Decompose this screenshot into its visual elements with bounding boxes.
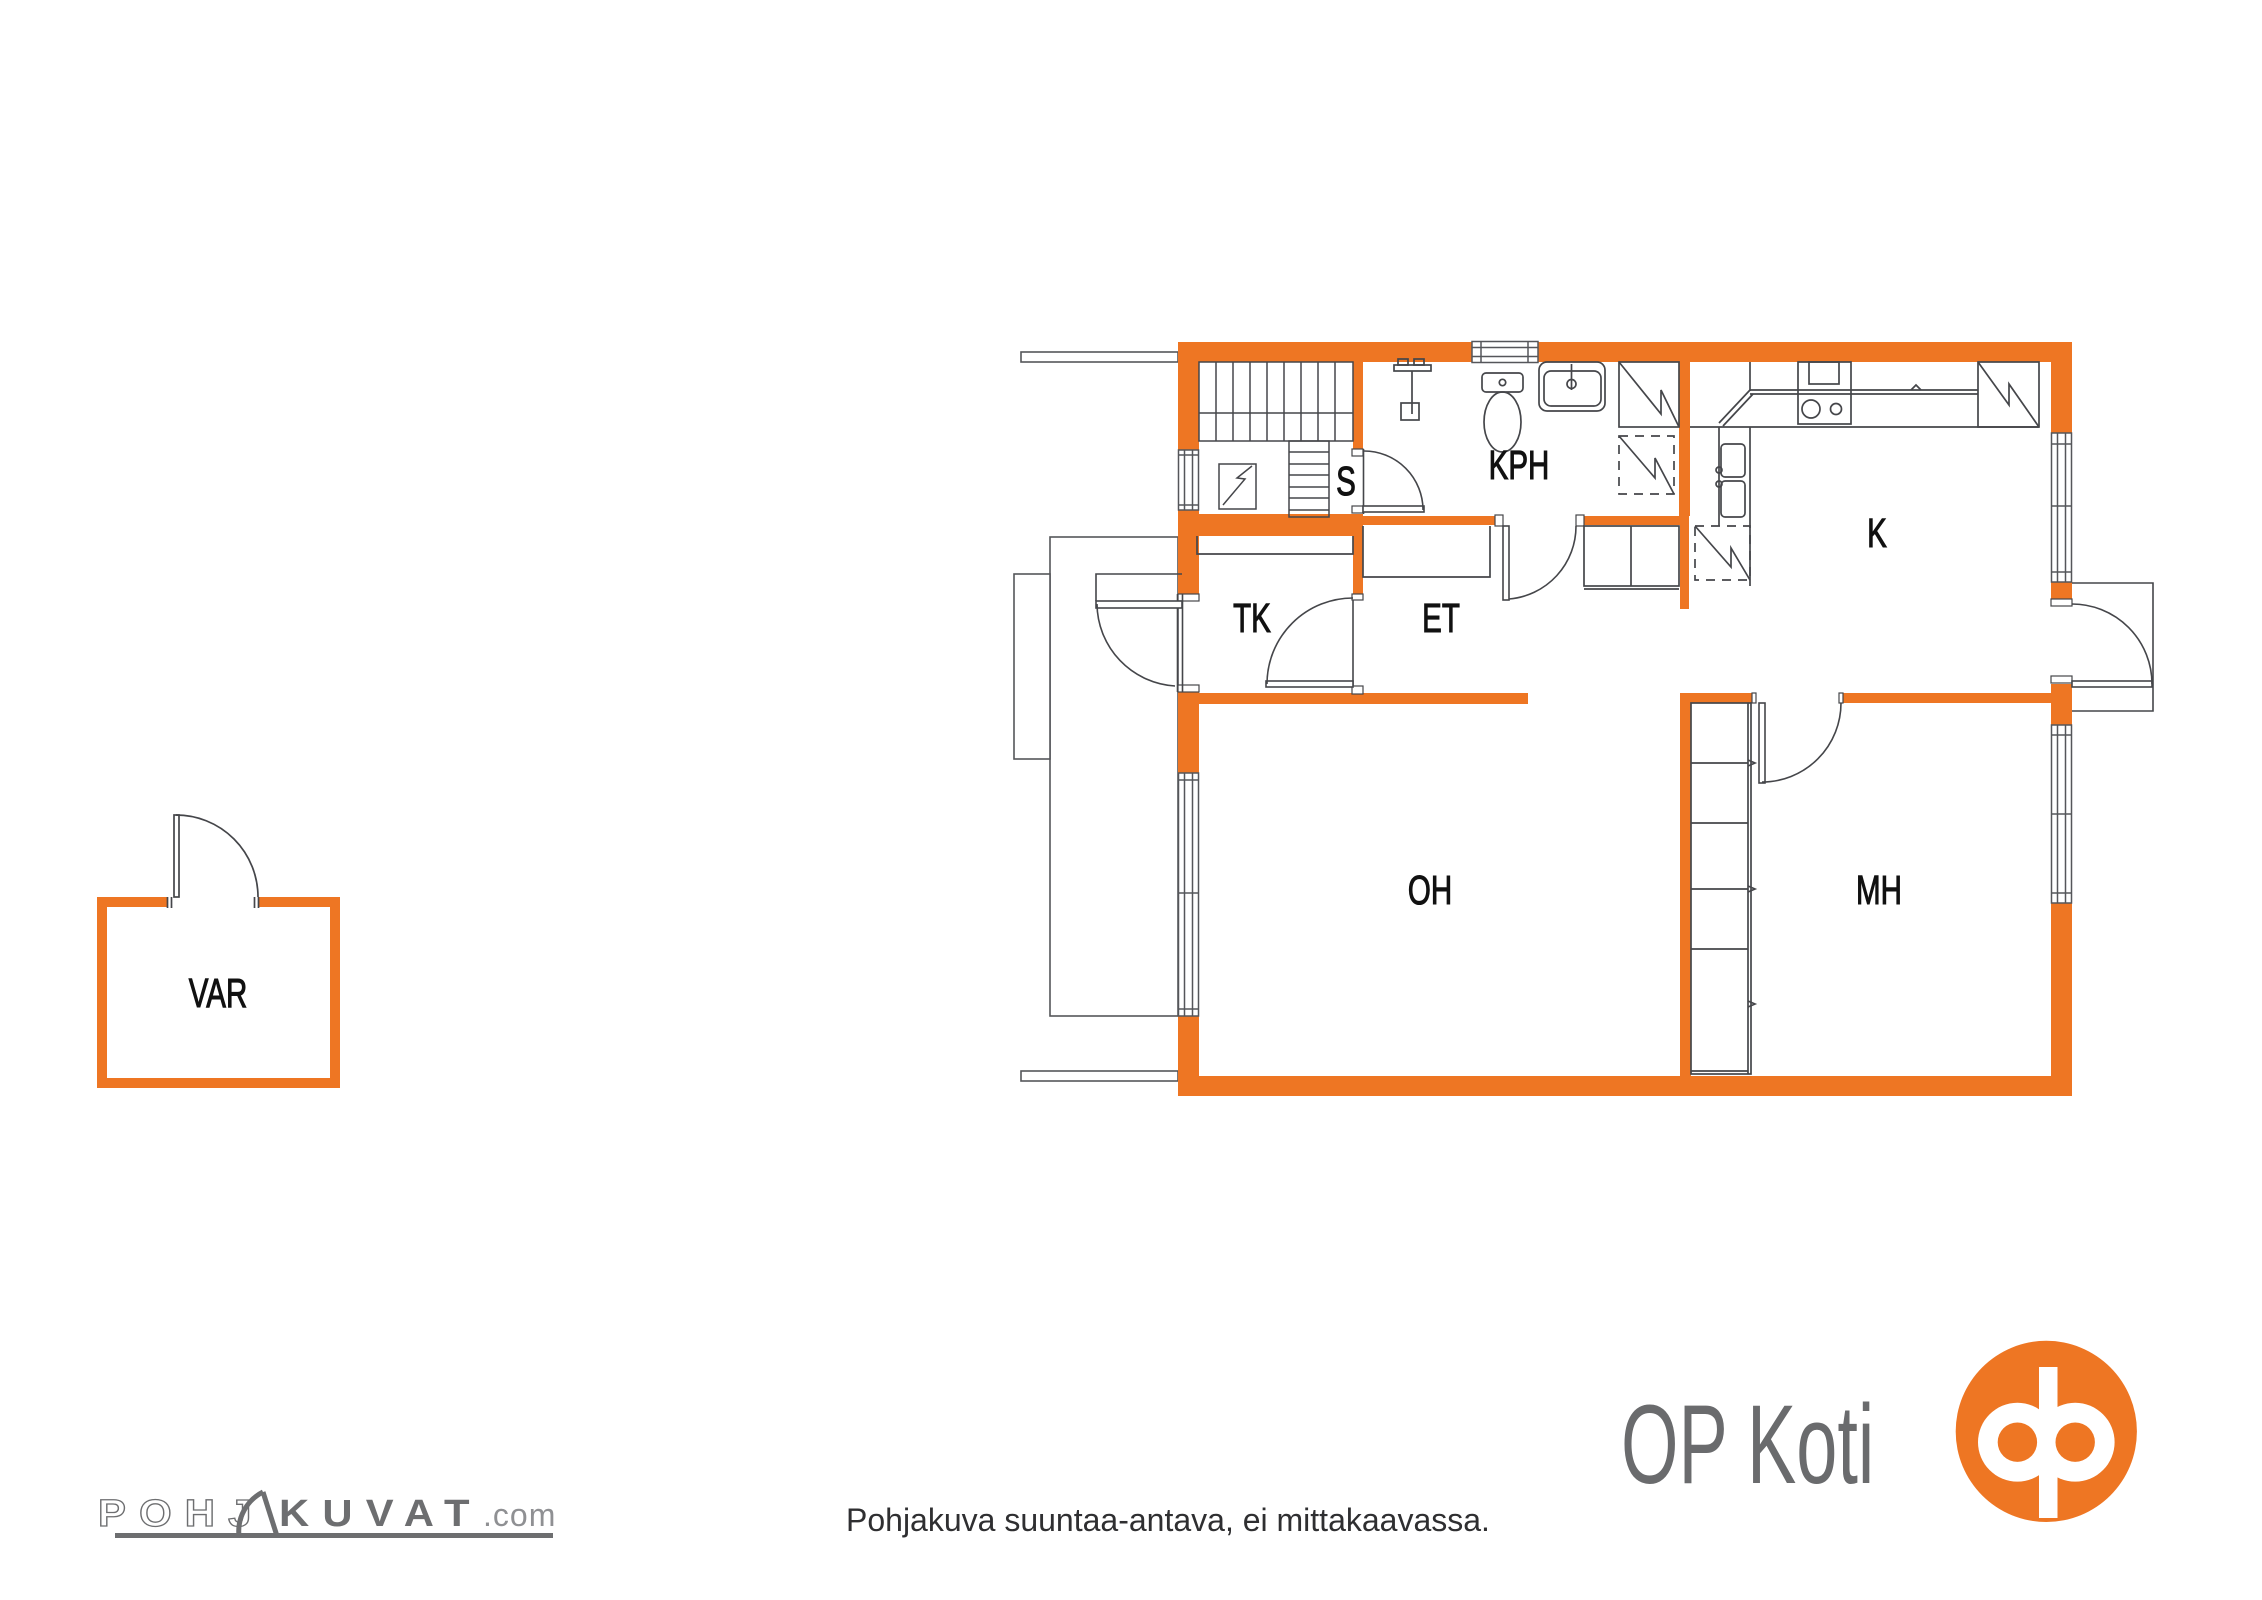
svg-text:KUVAT: KUVAT [279,1493,483,1535]
svg-text:S: S [1336,458,1356,504]
svg-text:VAR: VAR [189,970,248,1016]
svg-text:ET: ET [1422,595,1460,641]
svg-text:KPH: KPH [1489,442,1550,488]
svg-text:K: K [1867,510,1887,556]
svg-text:.com: .com [483,1497,556,1533]
svg-text:TK: TK [1233,595,1271,641]
svg-text:OP Koti: OP Koti [1621,1383,1874,1508]
svg-text:MH: MH [1856,867,1902,913]
svg-text:OH: OH [1408,867,1452,913]
svg-text:Pohjakuva suuntaa-antava, ei m: Pohjakuva suuntaa-antava, ei mittakaavas… [846,1502,1490,1538]
